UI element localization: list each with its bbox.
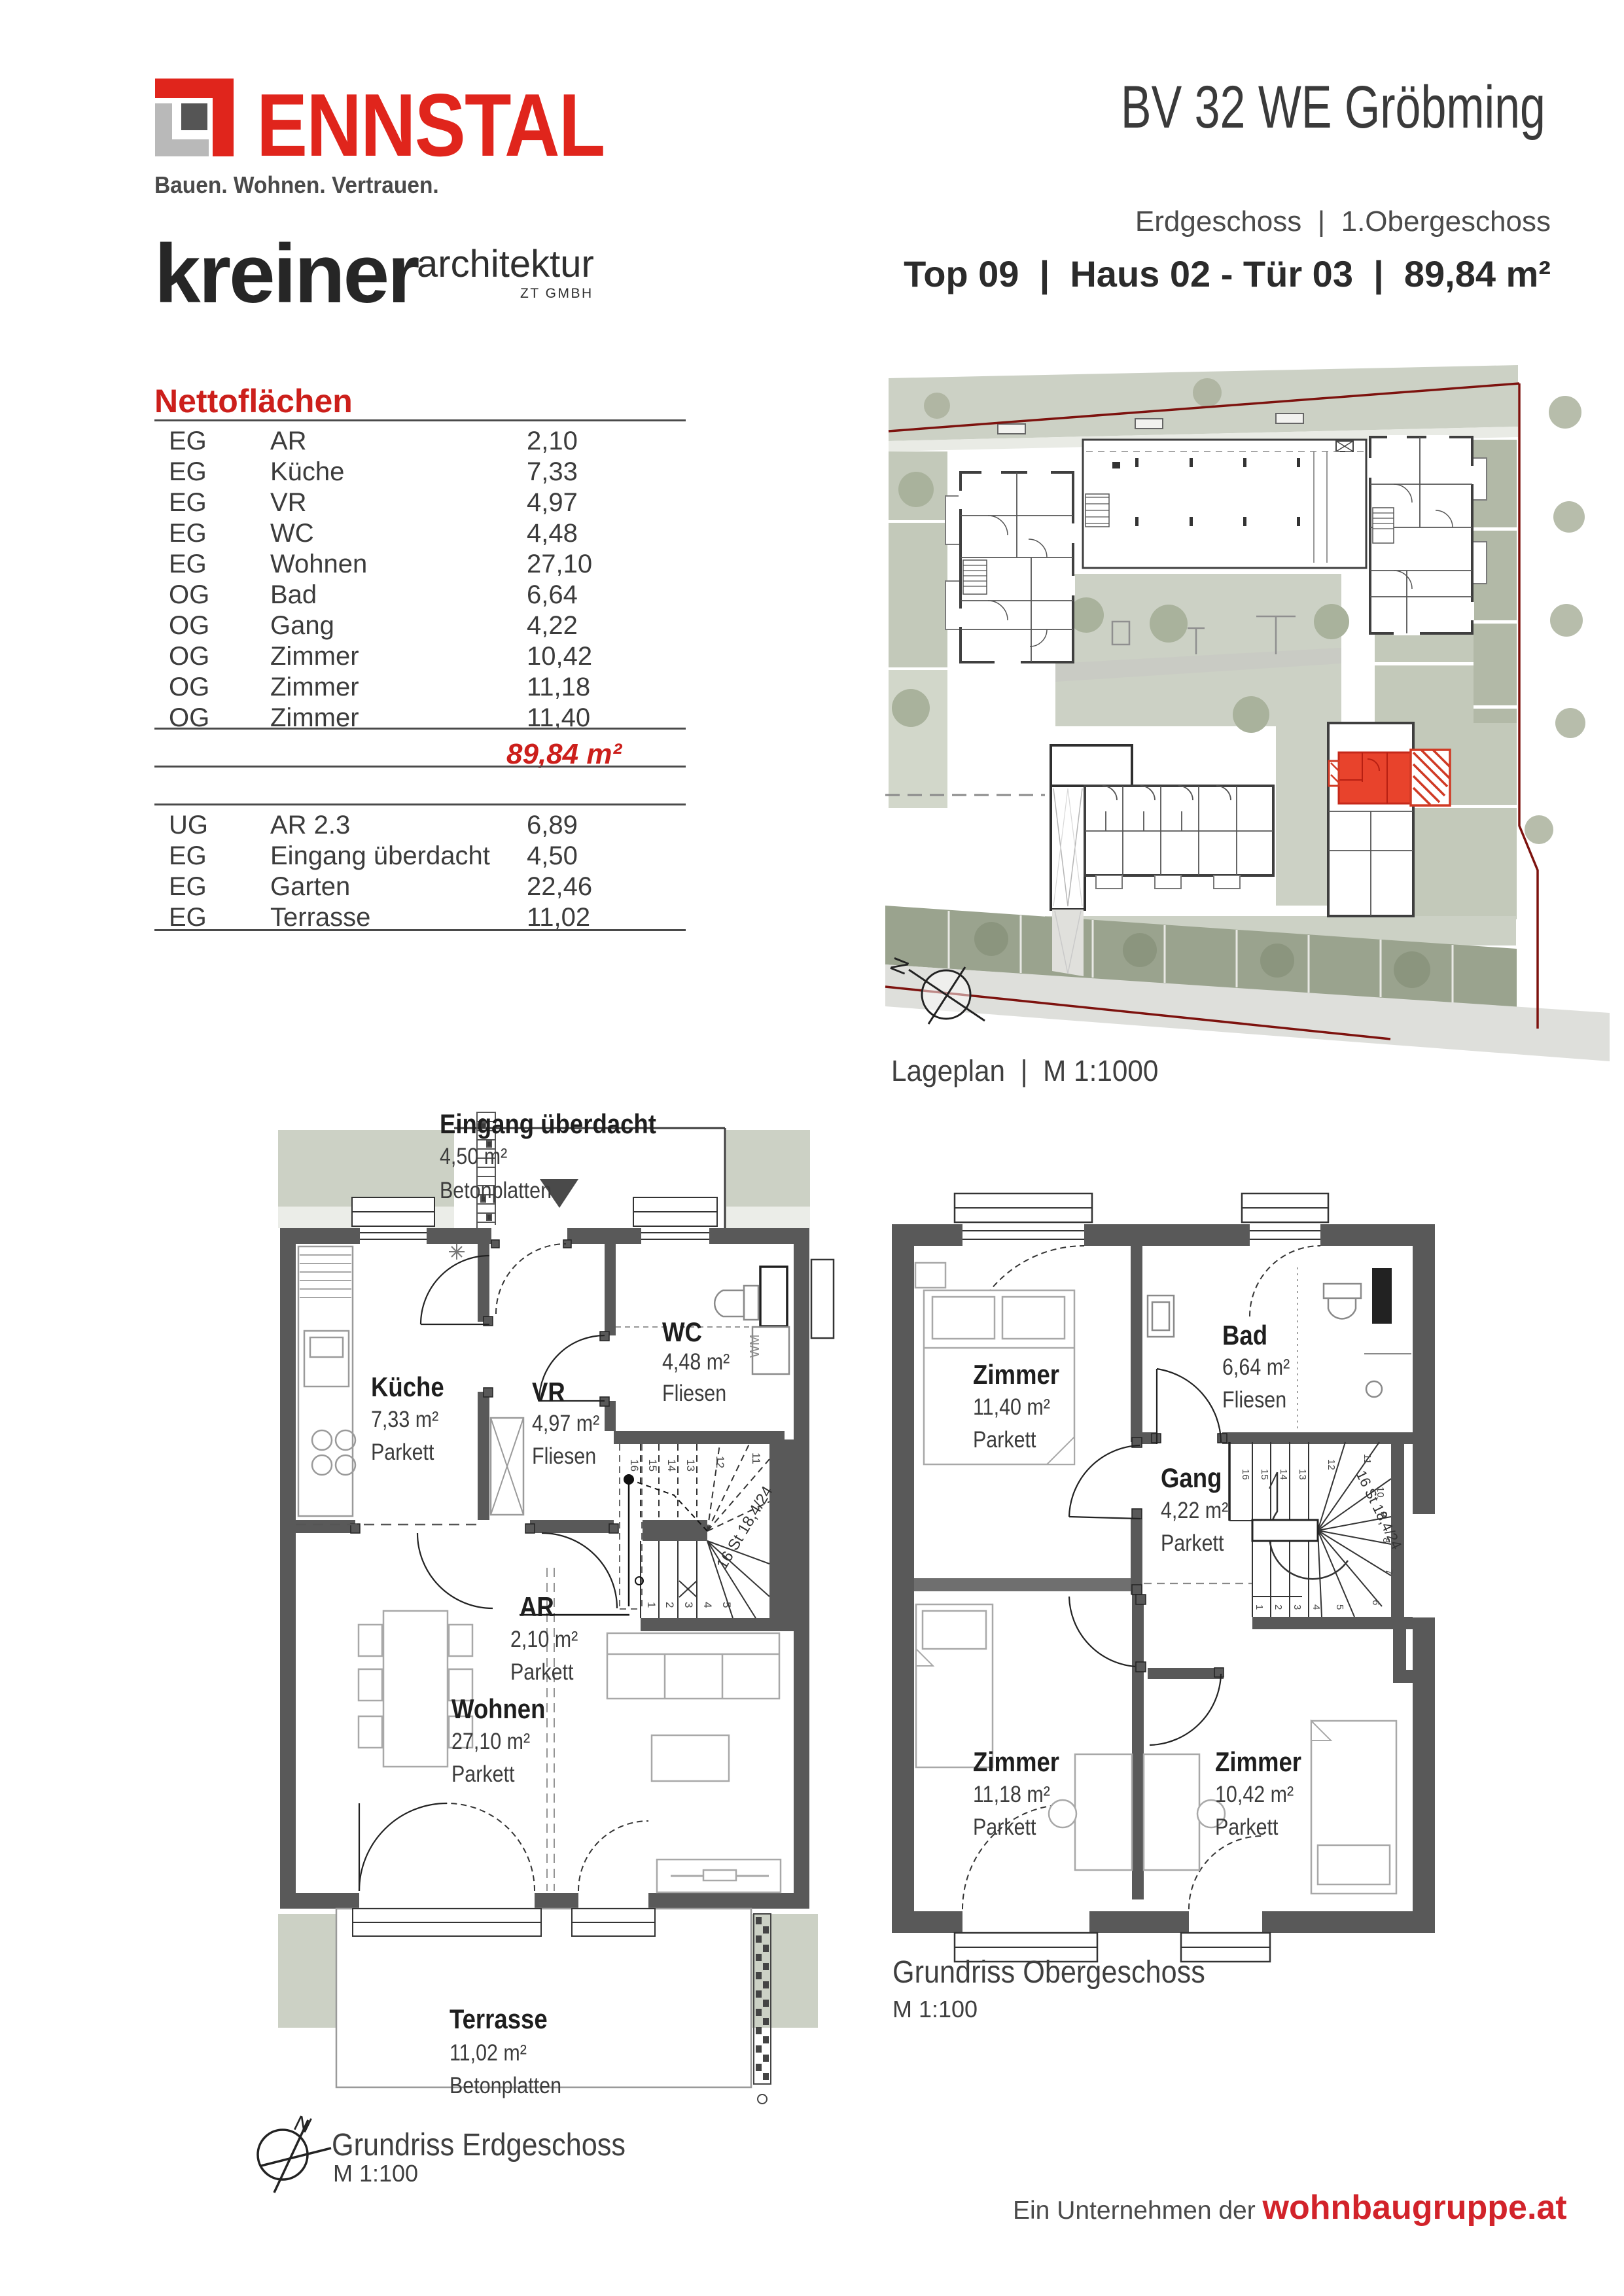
svg-text:5: 5 bbox=[1334, 1604, 1345, 1610]
svg-text:5: 5 bbox=[720, 1602, 733, 1608]
svg-text:13: 13 bbox=[1297, 1469, 1308, 1480]
svg-text:16: 16 bbox=[1240, 1469, 1251, 1480]
svg-text:1: 1 bbox=[645, 1602, 658, 1608]
svg-text:WM: WM bbox=[748, 1334, 762, 1358]
svg-text:3: 3 bbox=[682, 1602, 695, 1608]
svg-text:12: 12 bbox=[714, 1456, 726, 1468]
svg-text:7: 7 bbox=[1383, 1569, 1394, 1574]
svg-text:11: 11 bbox=[750, 1453, 762, 1464]
svg-text:6: 6 bbox=[1370, 1600, 1381, 1605]
svg-text:2: 2 bbox=[663, 1602, 676, 1608]
svg-text:2: 2 bbox=[1273, 1604, 1284, 1610]
svg-text:4: 4 bbox=[1311, 1604, 1322, 1610]
svg-text:13: 13 bbox=[684, 1459, 697, 1472]
svg-text:12: 12 bbox=[1326, 1459, 1337, 1470]
svg-text:1: 1 bbox=[1254, 1604, 1265, 1610]
svg-text:4: 4 bbox=[701, 1602, 714, 1608]
svg-text:15: 15 bbox=[1259, 1469, 1270, 1480]
svg-text:16: 16 bbox=[628, 1459, 641, 1472]
svg-text:11: 11 bbox=[1362, 1454, 1373, 1464]
svg-text:3: 3 bbox=[1292, 1604, 1303, 1610]
svg-text:15: 15 bbox=[646, 1459, 659, 1472]
svg-text:14: 14 bbox=[665, 1459, 678, 1472]
svg-text:N: N bbox=[292, 2110, 313, 2138]
svg-text:14: 14 bbox=[1278, 1469, 1289, 1480]
